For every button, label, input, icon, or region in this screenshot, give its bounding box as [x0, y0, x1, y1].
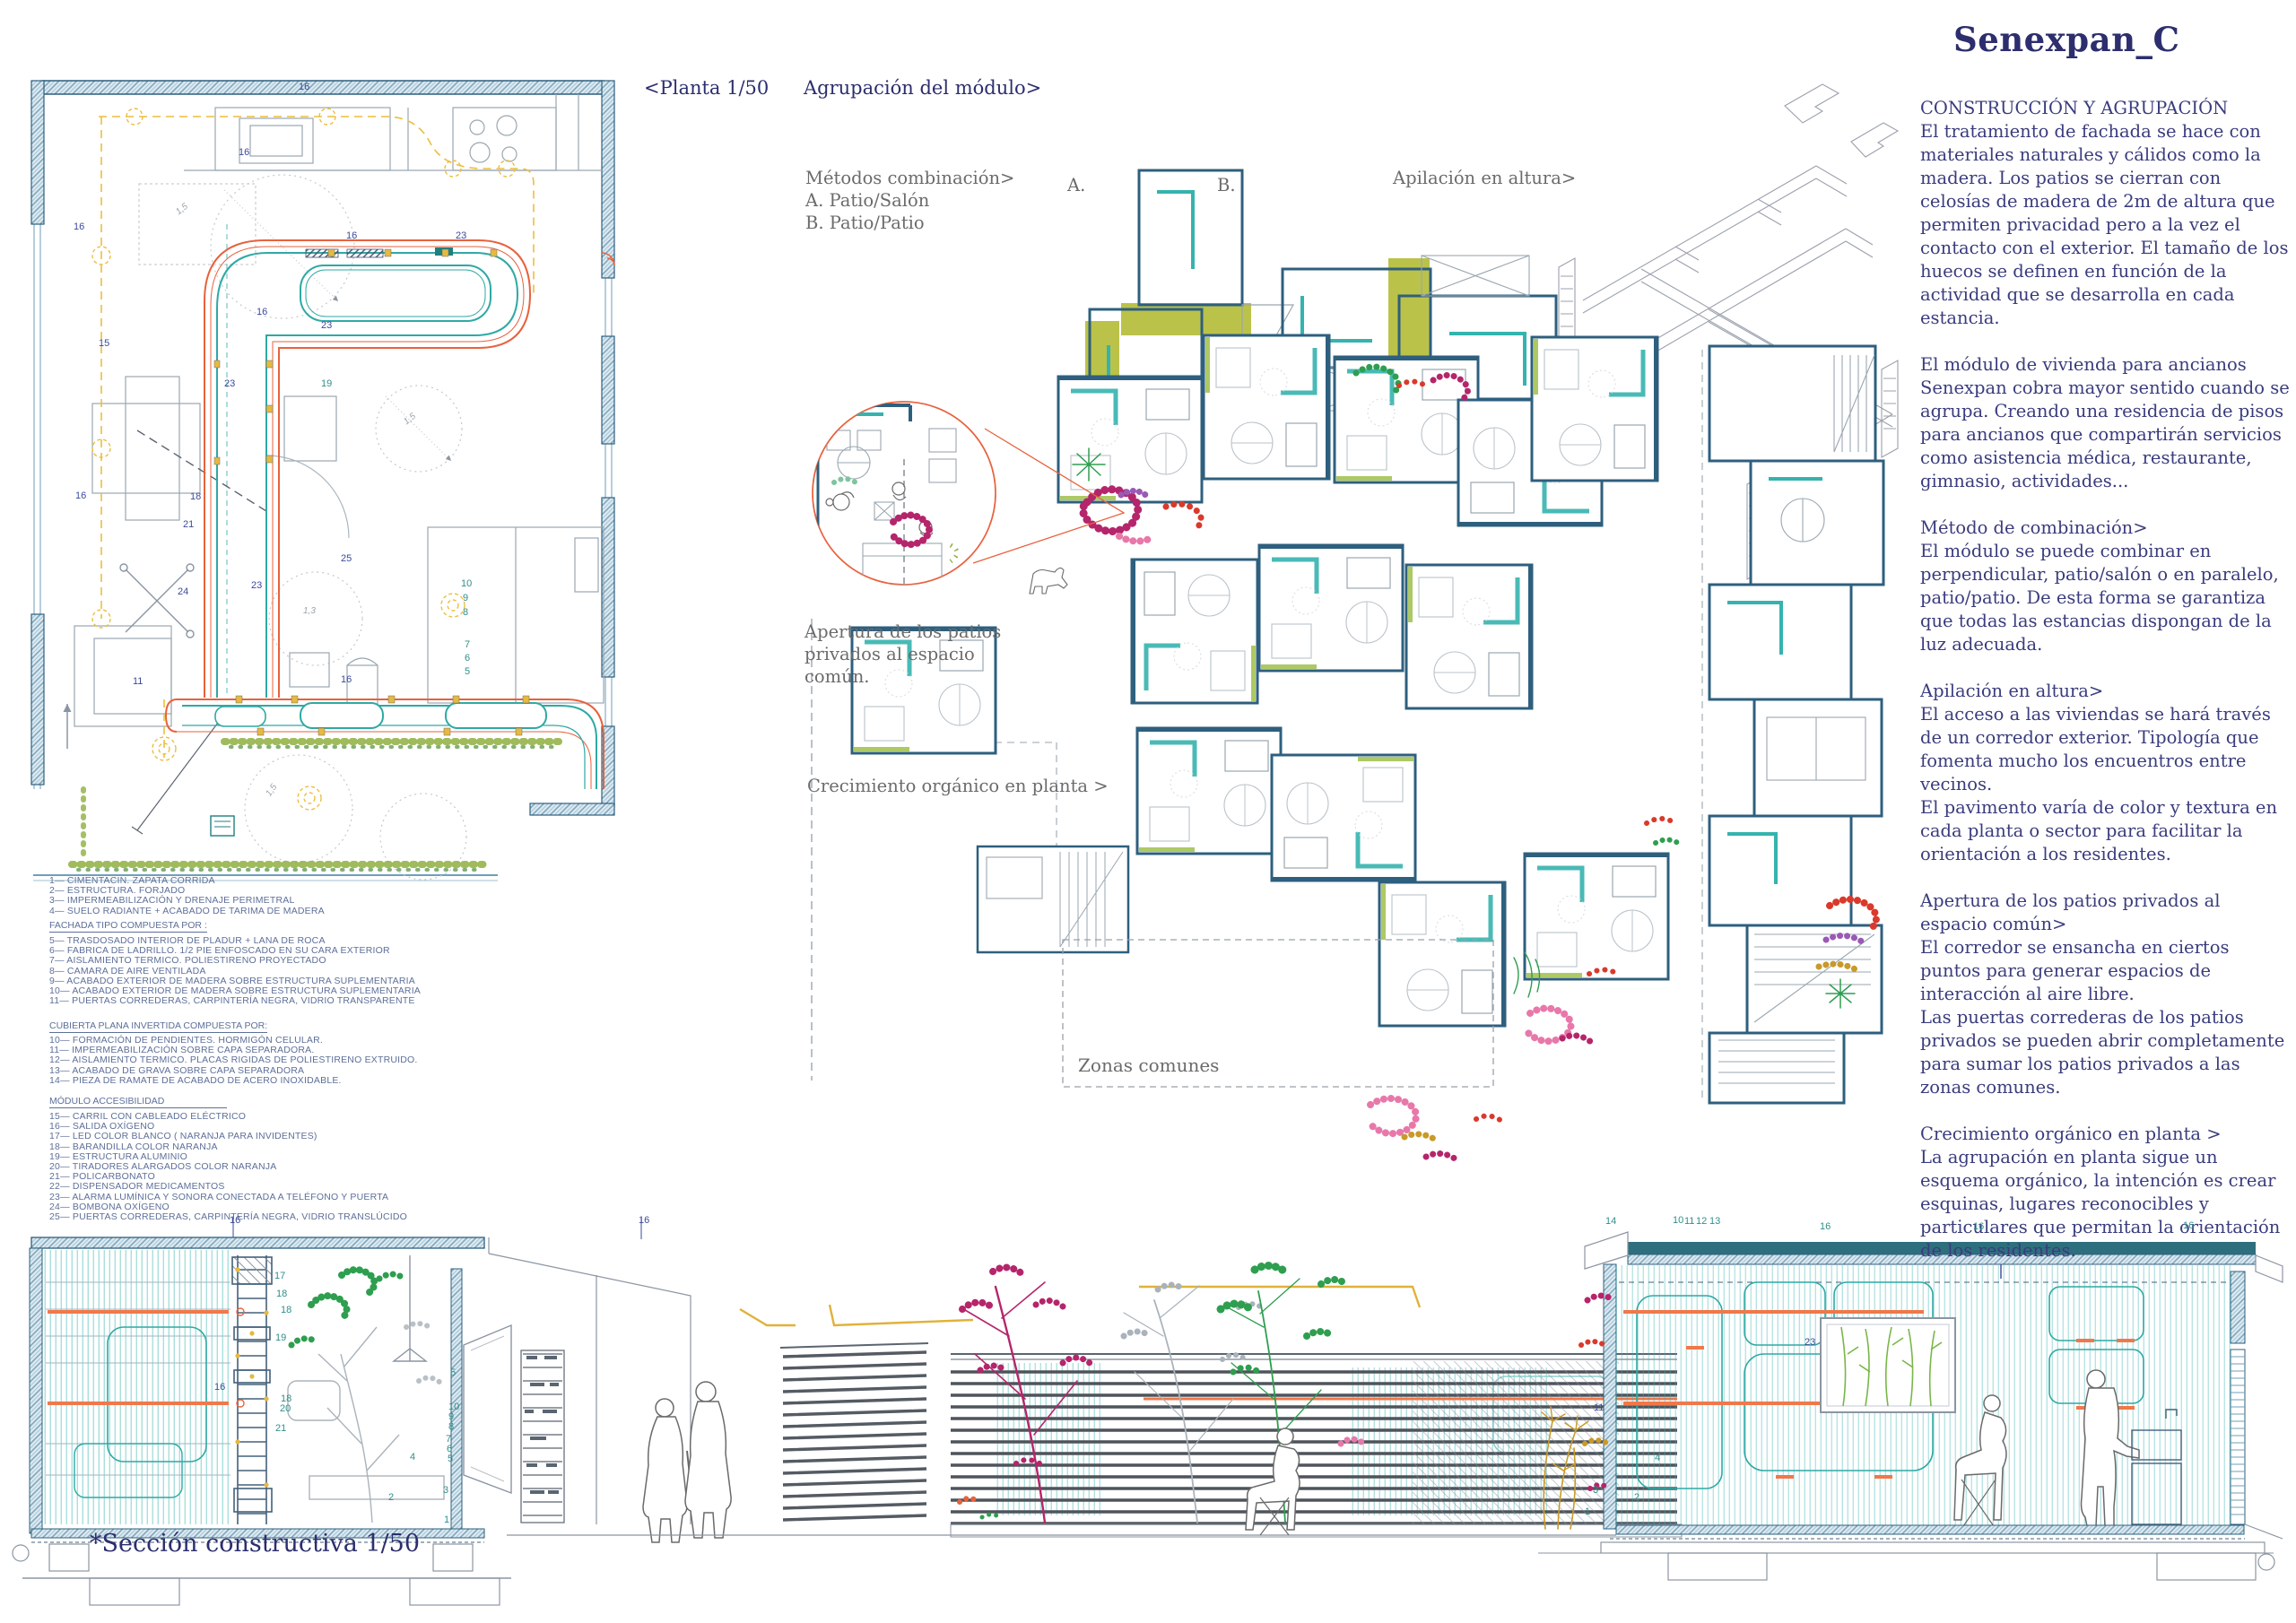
project-title: Senexpan_C [1953, 20, 2179, 59]
article-column: CONSTRUCCIÓN Y AGRUPACIÓNEl tratamiento … [1920, 97, 2292, 1286]
right-module-strip [1709, 346, 1883, 1103]
people-standing [643, 1382, 731, 1542]
notes-group-3: 10— FORMACIÓN DE PENDIENTES. HORMIGÓN CE… [49, 1036, 418, 1086]
note-line: 3— IMPERMEABILIZACIÓN Y DRENAJE PERIMETR… [49, 896, 325, 906]
zonas-comunes-label: Zonas comunes [1078, 1055, 1219, 1077]
notes-heading-cubierta: CUBIERTA PLANA INVERTIDA COMPUESTA POR: [49, 1020, 267, 1033]
note-line: 11— PUERTAS CORREDERAS, CARPINTERÍA NEGR… [49, 996, 421, 1006]
note-line: 7— AISLAMIENTO TERMICO. POLIESTIRENO PRO… [49, 956, 421, 966]
cluster-plan [812, 335, 1883, 1159]
crecimiento-label: Crecimiento orgánico en planta > [807, 775, 1109, 797]
notes-group-1: 1— CIMENTACIN. ZAPATA CORRIDA2— ESTRUCTU… [49, 876, 325, 916]
article-block-heading: Apilación en altura> [1920, 680, 2292, 703]
plan-title: <Planta 1/50 [644, 77, 769, 99]
article-block-body: El tratamiento de fachada se hace con ma… [1920, 120, 2292, 330]
article-block: Crecimiento orgánico en planta >La agrup… [1920, 1123, 2292, 1263]
article-block: Método de combinación>El módulo se puede… [1920, 516, 2292, 656]
diagram-b-label: B. [1217, 174, 1236, 196]
article-block-body: El corredor se ensancha en ciertos punto… [1920, 936, 2292, 1099]
note-line: 22— DISPENSADOR MEDICAMENTOS [49, 1182, 407, 1192]
article-block-heading: CONSTRUCCIÓN Y AGRUPACIÓN [1920, 97, 2292, 120]
notes-group-2: 5— TRASDOSADO INTERIOR DE PLADUR + LANA … [49, 936, 421, 1006]
plan-greenery [72, 742, 562, 870]
dog-figure [1030, 568, 1067, 594]
article-block: Apertura de los patios privados al espac… [1920, 890, 2292, 1099]
presentation-board: <Planta 1/50 Agrupación del módulo> Méto… [0, 0, 2296, 1623]
electric-track [99, 117, 534, 758]
apertura-label: Apertura de los patios privados al espac… [804, 621, 1036, 688]
section-courtyard-left [489, 1237, 796, 1542]
agrupacion-title: Agrupación del módulo> [804, 77, 1041, 99]
article-block: CONSTRUCCIÓN Y AGRUPACIÓNEl tratamiento … [1920, 97, 2292, 330]
article-block-body: El módulo de vivienda para ancianos Sene… [1920, 353, 2292, 493]
floor-plan [31, 81, 614, 881]
notes-group-4: 15— CARRIL CON CABLEADO ELÉCTRICO16— SAL… [49, 1112, 407, 1222]
article-block-heading: Método de combinación> [1920, 516, 2292, 540]
article-block-heading: Crecimiento orgánico en planta > [1920, 1123, 2292, 1146]
bamboo-window [1821, 1318, 1955, 1412]
notes-heading-modulo: MÓDULO ACCESIBILIDAD [49, 1096, 227, 1108]
note-line: 12— AISLAMIENTO TERMICO. PLACAS RIGIDAS … [49, 1055, 418, 1065]
article-block: Apilación en altura>El acceso a las vivi… [1920, 680, 2292, 866]
scissors-symbol [120, 564, 194, 638]
person-seated-courtyard [1246, 1428, 1300, 1535]
note-line: 17— LED COLOR BLANCO ( NARANJA PARA INVI… [49, 1132, 407, 1141]
note-line: 4— SUELO RADIANTE + ACABADO DE TARIMA DE… [49, 907, 325, 916]
section-title: *Sección constructiva 1/50 [90, 1530, 420, 1558]
rail-fittings [214, 249, 529, 735]
article-block-body: El módulo se puede combinar en perpendic… [1920, 540, 2292, 656]
article-block-body: El acceso a las viviendas se hará través… [1920, 703, 2292, 866]
note-line: 25— PUERTAS CORREDERAS, CARPINTERÍA NEGR… [49, 1212, 407, 1222]
article-block-body: La agrupación en planta sigue un esquema… [1920, 1146, 2292, 1263]
article-block-heading: Apertura de los patios privados al espac… [1920, 890, 2292, 936]
apilacion-label: Apilación en altura> [1393, 167, 1576, 189]
diagram-a-label: A. [1067, 174, 1085, 196]
note-line: 14— PIEZA DE RAMATE DE ACABADO DE ACERO … [49, 1076, 418, 1086]
article-block: El módulo de vivienda para ancianos Sene… [1920, 353, 2292, 493]
kitchen-furniture [184, 94, 602, 170]
stair-module [978, 846, 1128, 952]
metodos-label: Métodos combinación> A. Patio/Salón B. P… [805, 167, 1014, 234]
notes-heading-fachada: FACHADA TIPO COMPUESTA POR : [49, 920, 207, 933]
